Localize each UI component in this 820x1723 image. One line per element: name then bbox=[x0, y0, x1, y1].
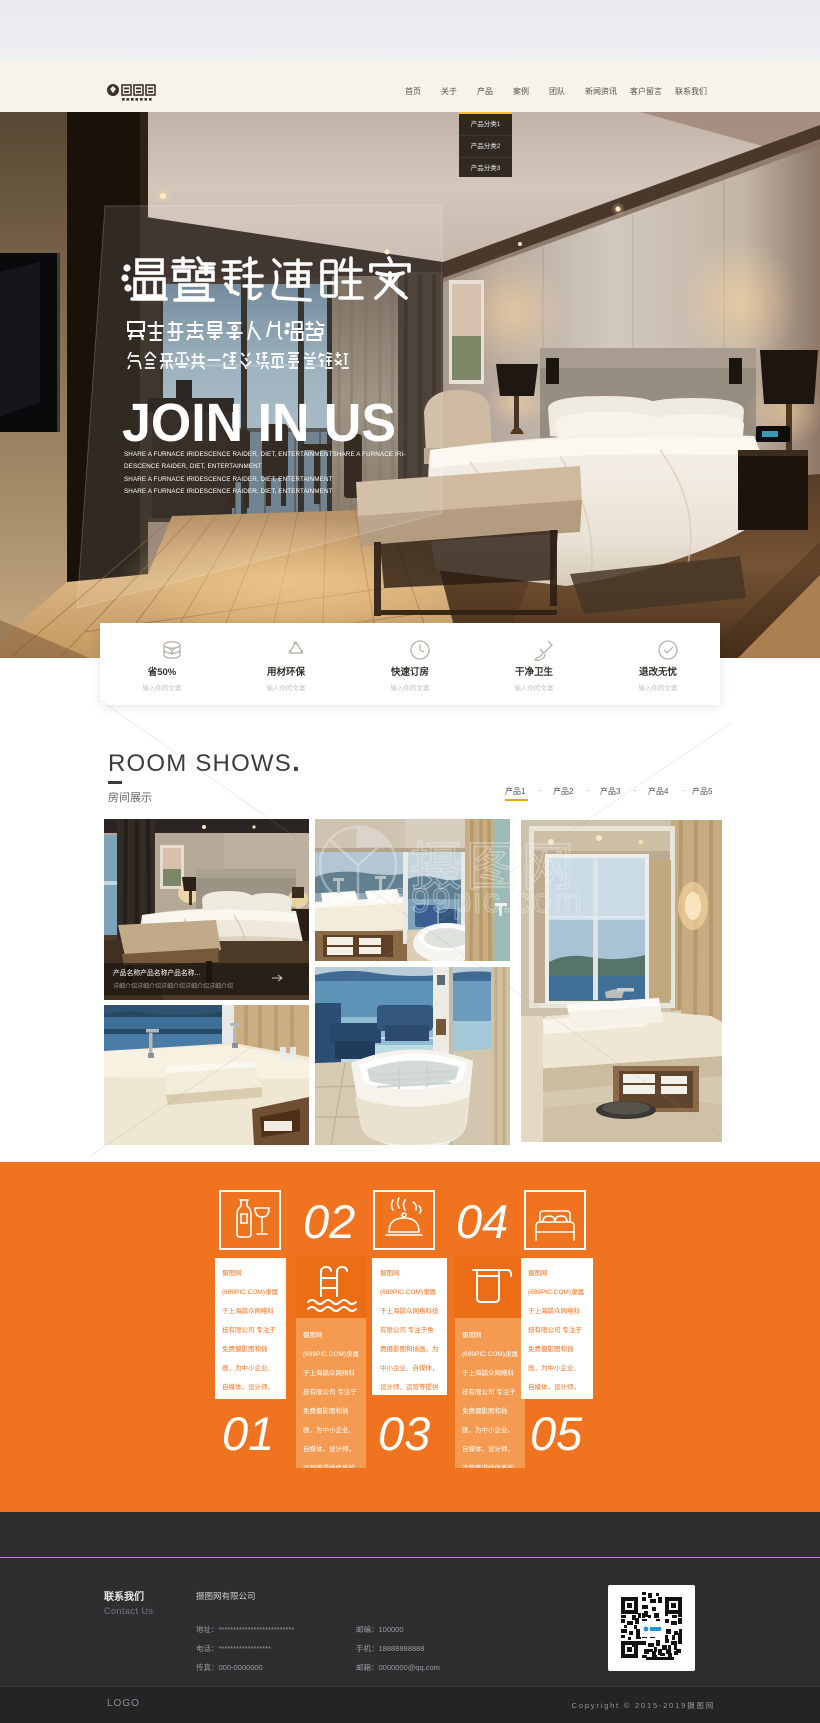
svg-text:省50%: 省50% bbox=[147, 666, 177, 678]
svg-text:SHARE A FURNACE IRIDESCENCE RA: SHARE A FURNACE IRIDESCENCE RAIDER, DIET… bbox=[124, 476, 333, 483]
svg-text:输入你的文案: 输入你的文案 bbox=[639, 683, 679, 692]
svg-text:JOIN IN US: JOIN IN US bbox=[122, 393, 396, 453]
svg-text:干净卫生: 干净卫生 bbox=[515, 666, 554, 678]
svg-text:用材环保: 用材环保 bbox=[266, 666, 306, 678]
svg-text:详细介绍详细介绍详细介绍详细介绍详细介绍: 详细介绍详细介绍详细介绍详细介绍详细介绍 bbox=[113, 982, 233, 990]
svg-text:SHARE A FURNACE IRIDESCENCE RA: SHARE A FURNACE IRIDESCENCE RAIDER, DIET… bbox=[124, 488, 333, 495]
svg-text:输入你的文案: 输入你的文案 bbox=[515, 683, 555, 692]
svg-text:输入你的文案: 输入你的文案 bbox=[267, 683, 307, 692]
svg-text:快速订房: 快速订房 bbox=[391, 666, 429, 678]
svg-text:输入你的文案: 输入你的文案 bbox=[391, 683, 431, 692]
svg-text:SHARE A FURNACE IRIDESCENCE RA: SHARE A FURNACE IRIDESCENCE RAIDER, DIET… bbox=[124, 451, 406, 458]
svg-text:退改无忧: 退改无忧 bbox=[639, 666, 678, 678]
svg-text:输入你的文案: 输入你的文案 bbox=[143, 683, 183, 692]
svg-text:产品名称产品名称产品名称...: 产品名称产品名称产品名称... bbox=[113, 968, 200, 977]
svg-text:DESCENCE RAIDER, DIET, ENTERTA: DESCENCE RAIDER, DIET, ENTERTAINMENT bbox=[124, 463, 262, 470]
